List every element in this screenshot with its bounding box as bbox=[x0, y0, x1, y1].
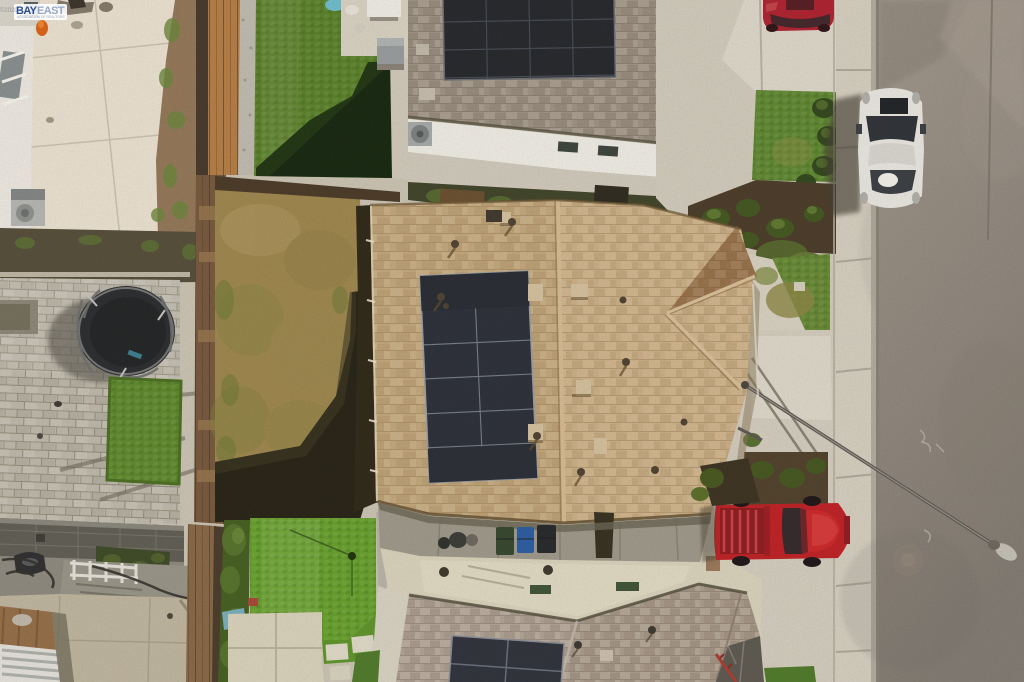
svg-text:ASSOCIATION OF REALTORS: ASSOCIATION OF REALTORS bbox=[17, 15, 65, 19]
